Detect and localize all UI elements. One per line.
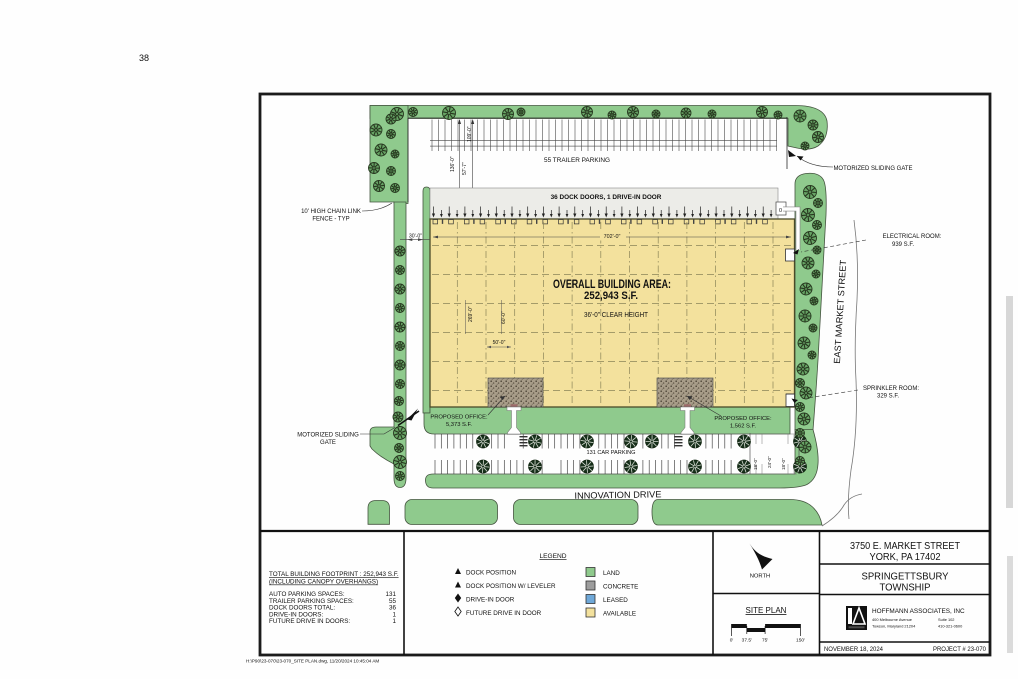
svg-text:MOTORIZED SLIDING GATE: MOTORIZED SLIDING GATE bbox=[833, 166, 912, 172]
svg-text:TOTAL BUILDING FOOTPRINT : 252: TOTAL BUILDING FOOTPRINT : 252,943 S.F. bbox=[269, 571, 399, 578]
svg-text:0: 0 bbox=[779, 208, 782, 214]
svg-text:NORTH: NORTH bbox=[750, 574, 771, 580]
svg-text:DOCK POSITION W/ LEVELER: DOCK POSITION W/ LEVELER bbox=[466, 583, 556, 590]
svg-text:LEASED: LEASED bbox=[603, 597, 628, 604]
svg-text:FUTURE DRIVE IN DOOR: FUTURE DRIVE IN DOOR bbox=[466, 610, 542, 617]
svg-text:H:\P90\23-070\23-070_SITE PLAN: H:\P90\23-070\23-070_SITE PLAN.dwg, 11/2… bbox=[246, 659, 379, 664]
svg-text:36 DOCK DOORS, 1 DRIVE-IN DOOR: 36 DOCK DOORS, 1 DRIVE-IN DOOR bbox=[551, 194, 662, 201]
svg-text:PROPOSED OFFICE:: PROPOSED OFFICE: bbox=[430, 415, 488, 421]
svg-text:SPRINGETTSBURY: SPRINGETTSBURY bbox=[862, 572, 949, 583]
svg-text:109'-0": 109'-0" bbox=[467, 126, 473, 142]
svg-text:400 Melbourne Avenue: 400 Melbourne Avenue bbox=[872, 617, 912, 622]
svg-text:60'-0": 60'-0" bbox=[501, 311, 507, 324]
svg-text:410-321-0600: 410-321-0600 bbox=[938, 624, 963, 629]
svg-text:GATE: GATE bbox=[320, 440, 336, 446]
svg-text:DRIVE-IN DOOR: DRIVE-IN DOOR bbox=[466, 597, 515, 604]
svg-text:AVAILABLE: AVAILABLE bbox=[603, 611, 636, 618]
svg-text:0': 0' bbox=[730, 638, 734, 644]
svg-text:3750 E. MARKET STREET: 3750 E. MARKET STREET bbox=[850, 541, 960, 552]
svg-text:LAND: LAND bbox=[603, 570, 620, 577]
svg-text:939 S.F.: 939 S.F. bbox=[892, 242, 914, 248]
svg-text:SITE PLAN: SITE PLAN bbox=[746, 606, 787, 615]
svg-text:YORK, PA 17402: YORK, PA 17402 bbox=[870, 552, 941, 563]
svg-text:1,562 S.F.: 1,562 S.F. bbox=[730, 423, 756, 429]
svg-text:NOVEMBER 18, 2024: NOVEMBER 18, 2024 bbox=[824, 646, 883, 653]
svg-text:18'-0": 18'-0" bbox=[753, 458, 758, 470]
svg-text:131 CAR PARKING: 131 CAR PARKING bbox=[586, 450, 635, 456]
svg-text:150': 150' bbox=[796, 638, 805, 644]
svg-text:Towson, Maryland 21204: Towson, Maryland 21204 bbox=[872, 624, 916, 629]
svg-text:38: 38 bbox=[139, 53, 149, 63]
svg-text:INNOVATION DRIVE: INNOVATION DRIVE bbox=[574, 489, 661, 501]
svg-text:1: 1 bbox=[392, 618, 396, 625]
svg-text:Suite 102: Suite 102 bbox=[938, 617, 954, 622]
svg-text:(INCLUDING CANOPY OVERHANGS): (INCLUDING CANOPY OVERHANGS) bbox=[269, 579, 378, 586]
svg-text:75': 75' bbox=[762, 638, 768, 644]
svg-text:LEGEND: LEGEND bbox=[539, 553, 566, 560]
svg-text:57'-7": 57'-7" bbox=[462, 162, 468, 175]
svg-text:FUTURE DRIVE IN DOORS:: FUTURE DRIVE IN DOORS: bbox=[269, 618, 350, 625]
svg-text:50'-0": 50'-0" bbox=[493, 340, 506, 346]
svg-text:10' HIGH CHAIN LINK: 10' HIGH CHAIN LINK bbox=[301, 209, 361, 215]
svg-text:702'-0": 702'-0" bbox=[604, 234, 621, 240]
svg-text:5,373 S.F.: 5,373 S.F. bbox=[446, 422, 472, 428]
svg-text:PROJECT # 23-070: PROJECT # 23-070 bbox=[933, 646, 986, 653]
svg-text:252,943 S.F.: 252,943 S.F. bbox=[584, 290, 638, 302]
svg-text:269'-0": 269'-0" bbox=[468, 306, 474, 322]
svg-text:TOWNSHIP: TOWNSHIP bbox=[880, 583, 931, 594]
svg-text:18'-0": 18'-0" bbox=[781, 458, 786, 470]
svg-text:55 TRAILER PARKING: 55 TRAILER PARKING bbox=[544, 157, 610, 164]
svg-text:36'-0" CLEAR HEIGHT: 36'-0" CLEAR HEIGHT bbox=[584, 310, 648, 319]
svg-text:24'-0": 24'-0" bbox=[767, 456, 772, 468]
svg-text:DOCK POSITION: DOCK POSITION bbox=[466, 570, 516, 577]
svg-text:PROPOSED OFFICE:: PROPOSED OFFICE: bbox=[714, 416, 772, 422]
svg-text:CONCRETE: CONCRETE bbox=[603, 584, 638, 591]
svg-text:SPRINKLER ROOM:: SPRINKLER ROOM: bbox=[863, 386, 919, 392]
svg-text:37.5': 37.5' bbox=[742, 638, 752, 644]
svg-text:FENCE - TYP: FENCE - TYP bbox=[312, 217, 349, 223]
svg-text:136'-0": 136'-0" bbox=[450, 156, 456, 172]
svg-text:ELECTRICAL ROOM:: ELECTRICAL ROOM: bbox=[883, 234, 942, 240]
svg-text:329 S.F.: 329 S.F. bbox=[877, 394, 899, 400]
svg-text:MOTORIZED SLIDING: MOTORIZED SLIDING bbox=[297, 433, 359, 439]
svg-text:HOFFMANN ASSOCIATES, INC: HOFFMANN ASSOCIATES, INC bbox=[872, 608, 965, 615]
